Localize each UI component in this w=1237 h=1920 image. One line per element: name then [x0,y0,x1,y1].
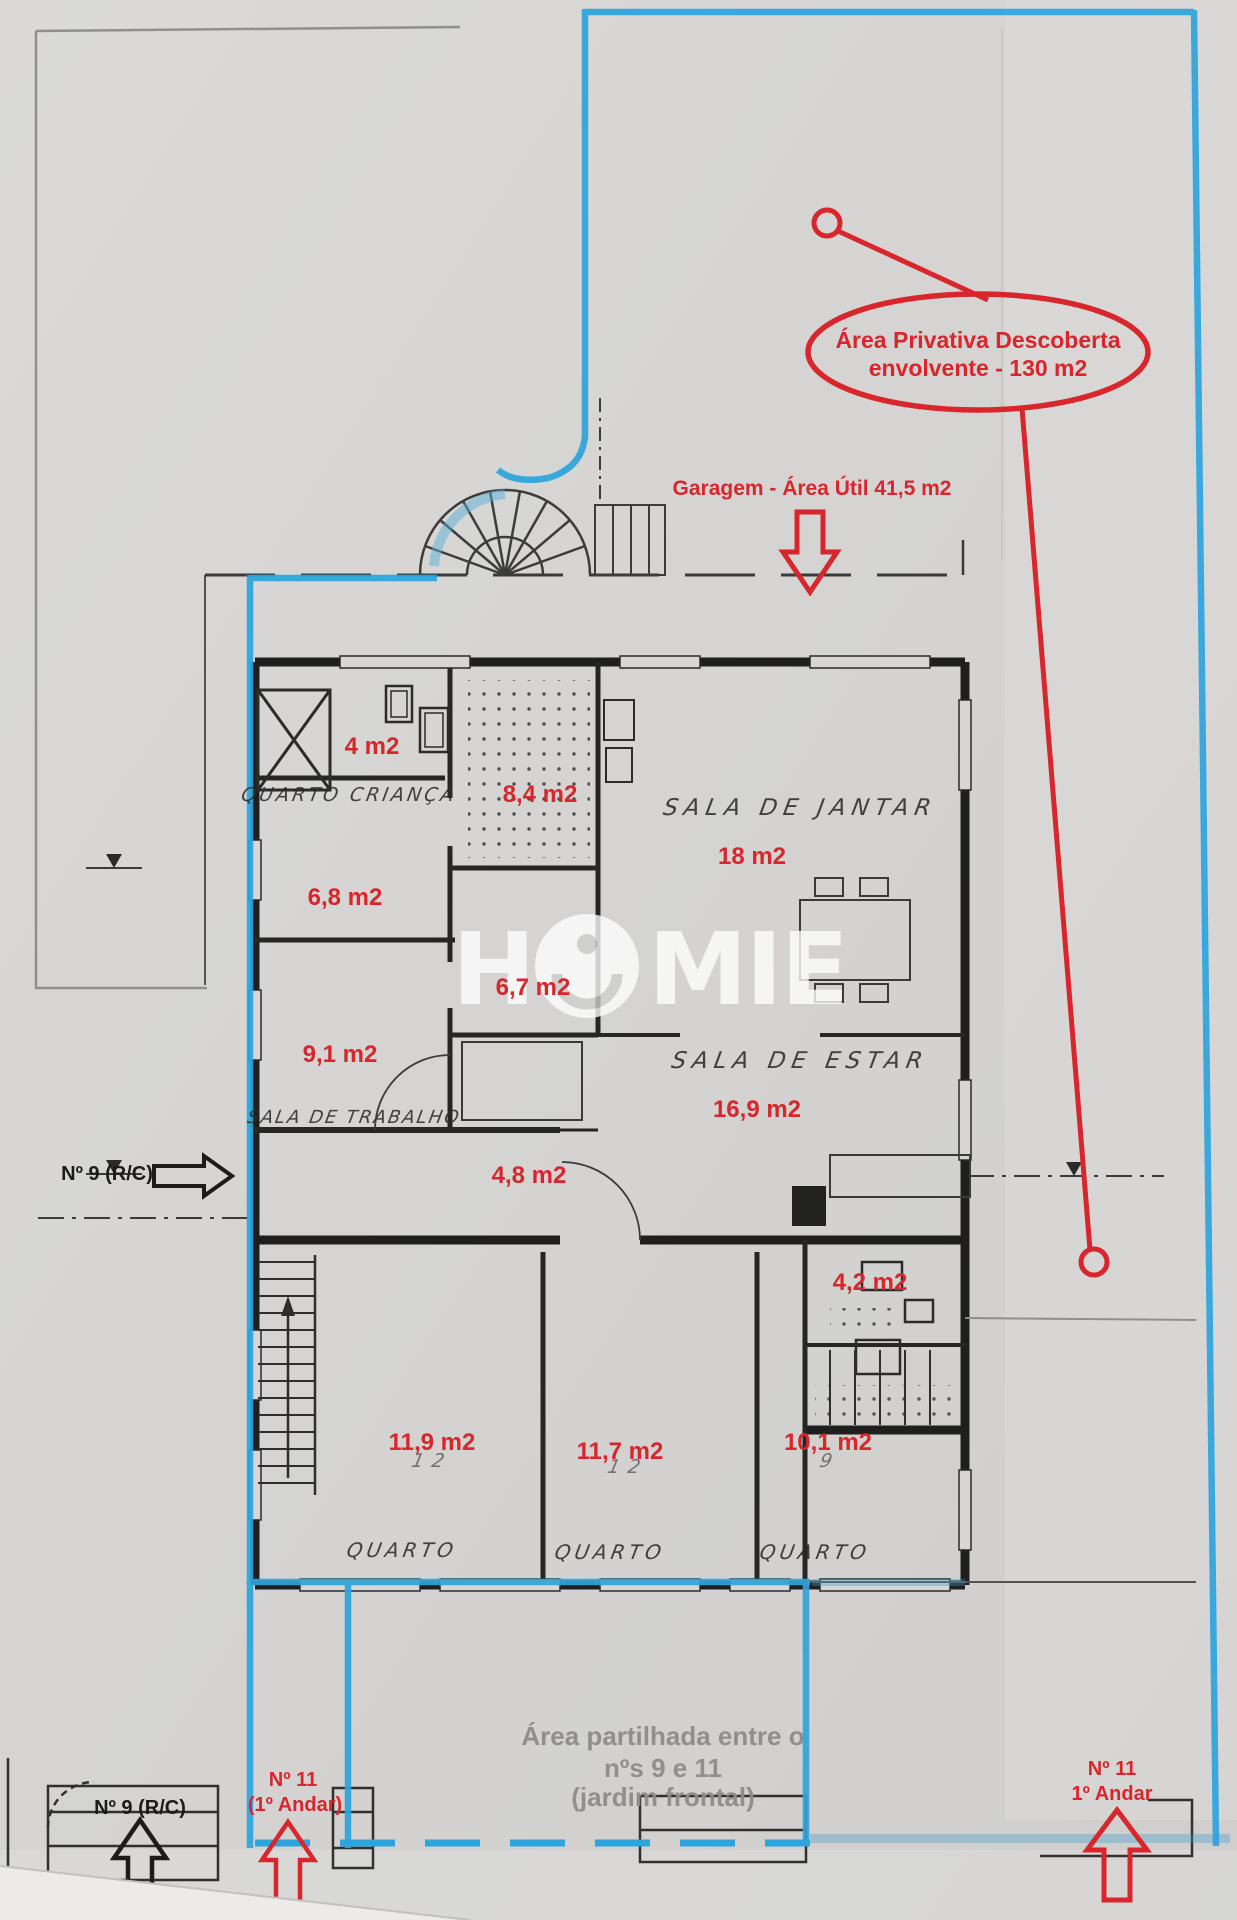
area-label-living: 16,9 m2 [713,1096,801,1124]
area-label-office: 9,1 m2 [303,1041,378,1069]
callout-text-line2: envolvente - 130 m2 [869,355,1088,382]
blue-smudge [810,1834,1230,1843]
garage-label: Garagem - Área Útil 41,5 m2 [673,477,952,501]
marker-n11-right-line1: Nº 11 [1088,1758,1136,1781]
area-label-dining: 18 m2 [718,843,786,871]
area-label-kitchen: 8,4 m2 [503,781,578,809]
room-name-quarto-1: QUARTO [345,1538,459,1562]
shared-area-line2: nºs 9 e 11 [604,1753,722,1784]
area-label-childroom: 6,8 m2 [308,884,383,912]
blue-smudge [812,1579,965,1586]
scanned-floor-plan-page: H MIE [0,0,1237,1920]
watermark-letter-h: H [452,911,536,1028]
callout-text-line1: Área Privativa Descoberta [835,327,1120,354]
area-label-hall: 6,7 m2 [496,974,571,1002]
marker-n9-bottom: Nº 9 (R/C) [94,1797,186,1820]
room-name-sala-estar: SALA DE ESTAR [669,1048,930,1074]
room-name-sala-trabalho: SALA DE TRABALHO [246,1107,463,1128]
floor-plan-drawing: H MIE [0,0,1237,1920]
pencil-note-2: 12 [606,1456,651,1478]
room-name-sala-jantar: SALA DE JANTAR [661,795,939,821]
area-label-smallbath: 4,2 m2 [833,1269,908,1297]
area-label-corridor: 4,8 m2 [492,1162,567,1190]
room-name-quarto-3: QUARTO [758,1540,872,1564]
smiley-o-icon [535,914,639,1018]
stair-landing-dots [815,1385,957,1427]
marker-n9-side: Nº 9 (R/C) [61,1163,153,1186]
shared-area-line3: (jardim frontal) [571,1782,754,1813]
marker-n11-left-line2: (1º Andar) [248,1794,342,1817]
shared-area-line1: Área partilhada entre o [521,1721,804,1752]
marker-n11-right-line2: 1º Andar [1071,1783,1152,1806]
homie-watermark: H MIE [452,911,847,1028]
watermark-letters-mie: MIE [648,911,847,1028]
room-name-quarto-2: QUARTO [553,1540,667,1564]
area-label-bath: 4 m2 [345,733,400,761]
room-name-quarto-crianca: QUARTO CRIANÇA [239,784,458,806]
kitchen-floor-dots [468,680,590,858]
pencil-note-1: 12 [410,1450,455,1472]
dark-door-block [792,1186,826,1226]
marker-n11-left-line1: Nº 11 [269,1769,317,1792]
